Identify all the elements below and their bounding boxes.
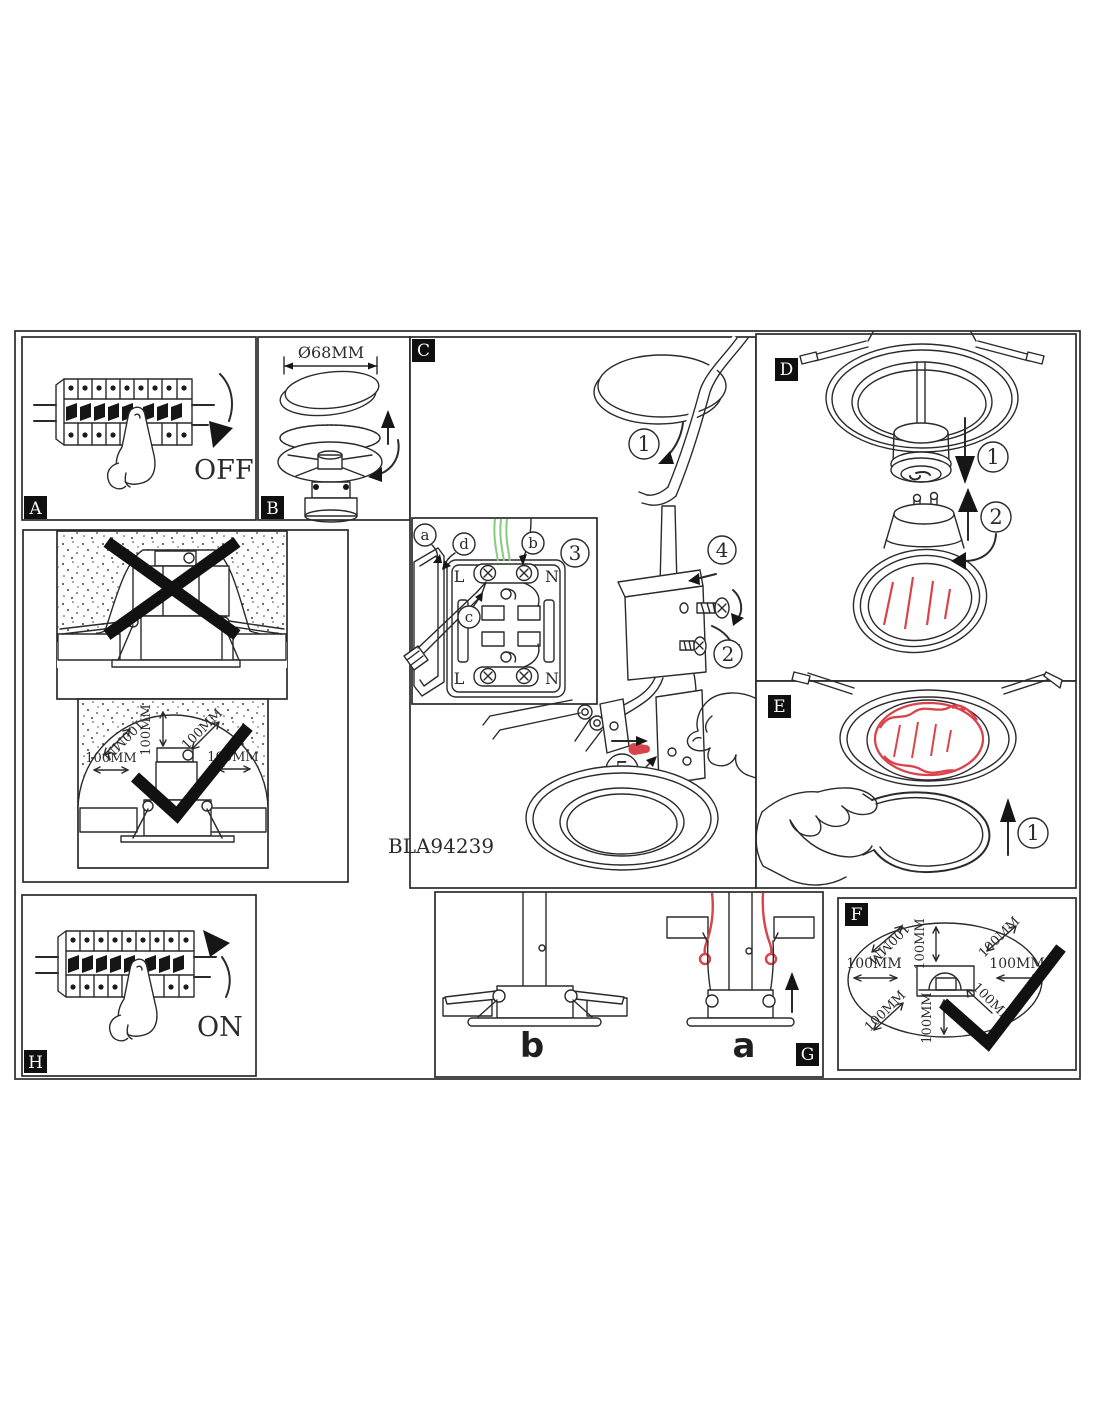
insulation-right-figure: 100MM 100MM 100MM 100MM 100MM xyxy=(78,699,268,868)
panel-b: Ø68MM xyxy=(258,337,410,522)
panel-b-tag: B xyxy=(266,499,279,519)
svg-text:100MM: 100MM xyxy=(920,992,935,1043)
svg-text:3: 3 xyxy=(569,541,582,565)
svg-text:a: a xyxy=(421,526,430,544)
svg-text:1: 1 xyxy=(986,445,999,469)
step-2-badge-d: 2 xyxy=(981,502,1011,532)
terminal-live-bottom: L xyxy=(454,669,465,688)
power-on-label: ON xyxy=(197,1012,243,1043)
wire-point-b-badge: b xyxy=(522,532,544,554)
panel-a-tag: A xyxy=(28,499,42,519)
svg-text:c: c xyxy=(465,608,473,626)
figure-b-label: b xyxy=(520,1026,544,1066)
panel-g-tag: G xyxy=(801,1045,815,1065)
panel-a: OFF A xyxy=(22,337,256,520)
hole-diameter-label: Ø68MM xyxy=(298,343,364,362)
terminal-neutral-top: N xyxy=(545,567,559,586)
svg-text:2: 2 xyxy=(989,505,1002,529)
panel-insulation-clearance: 100MM 100MM 100MM 100MM 100MM xyxy=(23,530,348,882)
wiring-inset: L N L N a xyxy=(404,518,597,704)
figure-a-label: a xyxy=(733,1026,756,1066)
step-1-badge-d: 1 xyxy=(978,442,1008,472)
panel-e-tag: E xyxy=(773,697,785,717)
svg-text:4: 4 xyxy=(716,538,729,562)
svg-text:100MM: 100MM xyxy=(85,751,136,766)
svg-text:100MM: 100MM xyxy=(989,956,1044,972)
panel-c-tag: C xyxy=(417,341,430,361)
svg-text:1: 1 xyxy=(637,432,650,456)
step-1-badge-e: 1 xyxy=(1018,818,1048,848)
ceiling-patch-drawing xyxy=(594,355,726,424)
step-4-badge: 4 xyxy=(708,536,736,564)
instruction-sheet: OFF A Ø68MM xyxy=(0,0,1100,1422)
product-code: BLA94239 xyxy=(388,834,494,858)
terminal-neutral-bottom: N xyxy=(545,669,559,688)
panel-h-tag: H xyxy=(28,1053,43,1073)
panel-h: ON H xyxy=(22,895,256,1076)
svg-text:1: 1 xyxy=(1026,821,1039,845)
panel-c: C 1 xyxy=(388,337,756,888)
svg-text:d: d xyxy=(459,535,469,553)
cover-plate-drawing xyxy=(414,548,444,696)
panel-e: E xyxy=(756,672,1076,888)
insulation-wrong-figure xyxy=(57,531,287,699)
step-2-badge: 2 xyxy=(714,640,742,668)
svg-text:2: 2 xyxy=(722,642,735,666)
power-off-label: OFF xyxy=(194,455,254,486)
svg-text:b: b xyxy=(528,534,538,552)
trim-ring-drawing xyxy=(526,766,718,870)
panel-f-tag: F xyxy=(851,905,863,925)
step-3-badge: 3 xyxy=(561,539,589,567)
terminal-live-top: L xyxy=(454,567,465,586)
panel-f: F 100MM 100MM 100MM 100MM 100MM 100MM 10… xyxy=(838,898,1076,1070)
svg-text:100MM: 100MM xyxy=(913,918,928,969)
panel-d: D xyxy=(756,332,1076,681)
panel-d-tag: D xyxy=(780,360,794,380)
panel-g: b a G xyxy=(435,892,823,1077)
